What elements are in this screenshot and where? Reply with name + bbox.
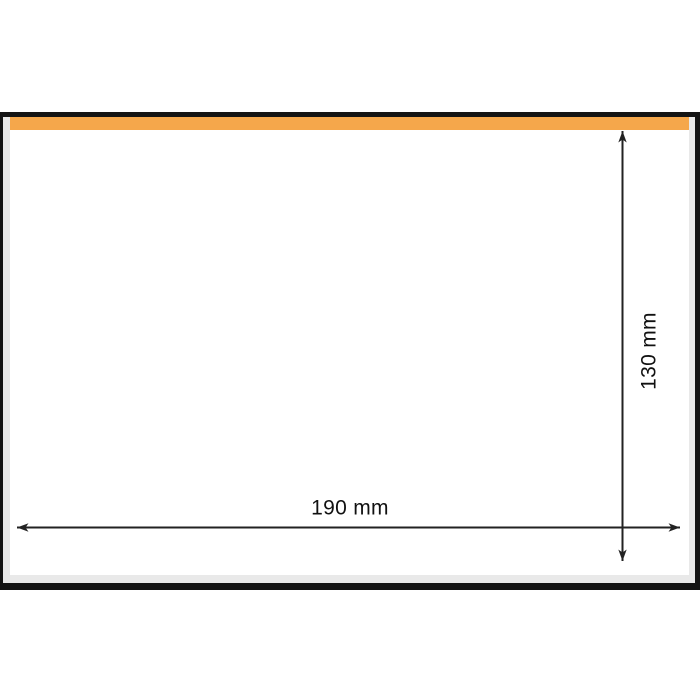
product-dimension-diagram: 190 mm 130 mm: [0, 0, 700, 700]
height-dimension-label: 130 mm: [639, 312, 660, 390]
width-dimension-label: 190 mm: [311, 498, 389, 519]
seal-strip: [10, 117, 689, 130]
